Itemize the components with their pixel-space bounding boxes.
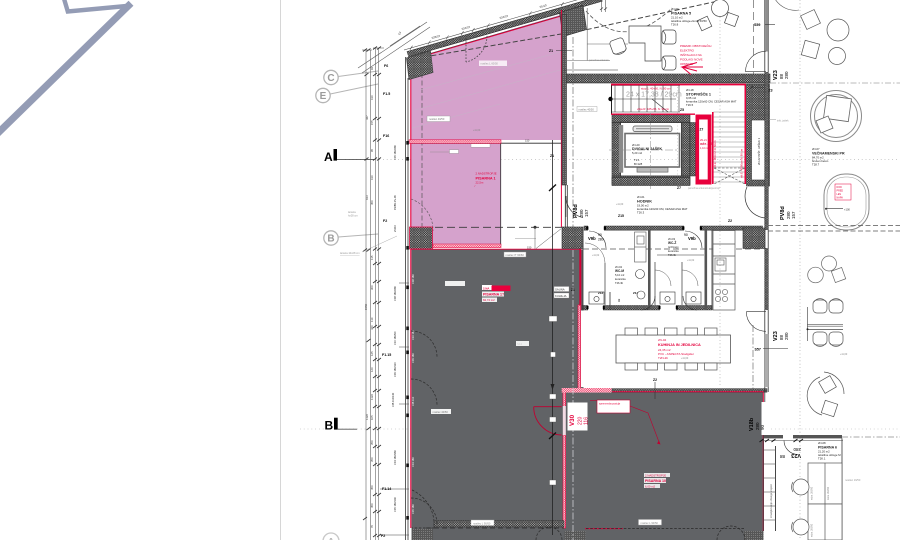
svg-text:INŠTALACIJ NA: INŠTALACIJ NA [680,52,702,57]
svg-text:2N-01: 2N-01 [637,195,645,199]
svg-text:lamela 10x28 cm: lamela 10x28 cm [340,251,360,255]
svg-text:V30: V30 [569,414,576,426]
svg-text:miza 160/80: miza 160/80 [827,486,830,500]
svg-text:70: 70 [370,524,374,528]
svg-text:nosilec L 90/50: nosilec L 90/50 [641,521,659,525]
svg-text:nosilec 16/50: nosilec 16/50 [845,478,861,482]
svg-text:T2N-2b: T2N-2b [658,356,668,360]
svg-text:keramika 120x60 CM, CESAR ASH: keramika 120x60 CM, CESAR ASH MAT [686,100,737,104]
svg-text:C04 180/360: C04 180/360 [393,450,397,465]
svg-text:2N-21: 2N-21 [700,139,707,142]
svg-text:hx28 cm: hx28 cm [348,214,358,218]
svg-text:nosilec L 90/50: nosilec L 90/50 [473,522,491,526]
svg-text:84,72 m2: 84,72 m2 [483,298,495,302]
svg-text:280: 280 [598,238,604,242]
svg-text:350: 350 [370,457,374,462]
svg-text:1550: 1550 [364,303,368,310]
svg-text:2.NADSTROPJE: 2.NADSTROPJE [476,172,497,176]
svg-text:+100: +100 [844,208,850,212]
svg-text:T26.3b: T26.3b [668,253,677,257]
svg-text:90: 90 [598,233,602,237]
svg-text:22,5m: 22,5m [476,180,484,184]
svg-text:90: 90 [760,424,765,430]
svg-text:KUHILJA: KUHILJA [555,294,567,298]
svg-text:miza 160/80: miza 160/80 [811,523,814,537]
svg-text:1126: 1126 [365,414,369,420]
svg-text:280: 280 [784,71,789,79]
svg-text:miza 160/80: miza 160/80 [811,486,814,500]
svg-text:keramika: keramika [668,249,679,253]
svg-text:F6: F6 [384,64,388,68]
svg-text:+11,60: +11,60 [473,129,481,132]
svg-text:5,20 m2: 5,20 m2 [632,151,643,155]
svg-text:+11,60: +11,60 [616,203,624,206]
svg-text:116: 116 [584,417,590,425]
svg-text:Z15: Z15 [618,214,624,218]
svg-text:2N-09: 2N-09 [671,7,679,11]
svg-text:157: 157 [791,211,796,219]
svg-text:T28.7: T28.7 [812,163,820,167]
svg-text:ELEKTRO: ELEKTRO [680,49,695,53]
svg-text:350: 350 [370,440,374,445]
svg-text:F2: F2 [381,534,385,538]
svg-text:2.NA: 2.NA [483,287,489,291]
svg-text:110: 110 [370,317,374,322]
svg-text:+11,62: +11,62 [687,259,695,262]
svg-text:115: 115 [370,255,374,260]
svg-text:2N/10: 2N/10 [393,225,397,232]
svg-text:SAUNA: SAUNA [555,288,565,292]
svg-text:A: A [324,150,333,164]
svg-text:C04 180: C04 180 [411,457,415,467]
svg-text:B: B [327,234,334,245]
svg-text:T26.8: T26.8 [671,23,679,27]
svg-text:150: 150 [525,139,530,143]
svg-text:Z7: Z7 [677,186,681,190]
svg-text:2N-18: 2N-18 [686,88,694,92]
svg-text:PODLAGI NOVE: PODLAGI NOVE [680,58,703,62]
svg-text:nosilec IT 90/60: nosilec IT 90/60 [506,253,525,257]
svg-text:C08 180: C08 180 [411,274,415,284]
svg-text:stop 1: 40+60, N: 90 cm: stop 1: 40+60, N: 90 cm [641,87,671,91]
svg-text:Z2: Z2 [728,219,732,223]
svg-text:keramika 120x60 CM, CESAR ASH: keramika 120x60 CM, CESAR ASH MAT [637,207,688,211]
svg-text:E: E [320,91,327,102]
svg-text:Z3: Z3 [769,89,773,93]
svg-text:95: 95 [370,148,374,152]
svg-text:PREMIK OBSTOJEČIH: PREMIK OBSTOJEČIH [680,43,711,48]
svg-text:+11,60: +11,60 [681,357,689,360]
svg-text:T26.3b: T26.3b [615,281,624,285]
svg-text:zmanjševanje obsega stopnic: zmanjševanje obsega stopnic [769,483,773,518]
svg-text:T26.3: T26.3 [637,211,645,215]
svg-text:viš E: 160cm / N: 60cm: viš E: 160cm / N: 60cm [713,140,717,168]
svg-text:Z12: Z12 [598,291,604,295]
svg-text:KUHINJA IN JEDILNICA: KUHINJA IN JEDILNICA [658,343,701,347]
svg-text:F1.14: F1.14 [382,487,391,491]
svg-text:2N-04: 2N-04 [658,338,667,342]
svg-text:T26.5: T26.5 [686,103,694,107]
svg-text:610: 610 [370,175,374,180]
svg-text:Z1: Z1 [571,288,575,292]
svg-text:C05 180: C05 180 [411,504,415,514]
svg-text:PISARNA 1?: PISARNA 1? [483,293,504,297]
svg-text:93: 93 [370,66,374,70]
svg-text:C10 180/90: C10 180/90 [393,331,397,345]
svg-text:S57: S57 [755,348,761,352]
svg-text:F9/B9 2N-06: F9/B9 2N-06 [393,195,397,210]
svg-text:nosilec 40/50: nosilec 40/50 [433,410,449,414]
svg-text:120: 120 [370,367,374,372]
svg-text:450: 450 [370,485,374,490]
svg-text:lamela: lamela [348,210,356,214]
svg-text:280: 280 [784,332,789,340]
svg-text:F2: F2 [383,219,387,223]
svg-text:300: 300 [370,285,374,290]
svg-text:NAPA: NAPA [837,197,844,200]
svg-text:inšt. jašek: inšt. jašek [777,119,789,123]
svg-text:2N-08: 2N-08 [818,441,826,445]
svg-text:B: B [325,419,334,433]
svg-text:nosilec 40/50: nosilec 40/50 [579,108,595,112]
svg-text:1126: 1126 [370,394,374,400]
svg-text:F16: F16 [383,134,389,138]
svg-text:PISARNA 10: PISARNA 10 [645,479,666,483]
svg-text:447: 447 [365,115,369,120]
svg-text:Z5: Z5 [680,108,684,112]
svg-text:tu/Omejp: tu/Omejp [668,245,679,249]
svg-text:V9b: V9b [688,236,696,241]
svg-text:5,10 m2: 5,10 m2 [615,273,625,277]
svg-text:C09 180/110: C09 180/110 [393,362,397,377]
svg-text:C/B 110/140: C/B 110/140 [391,392,395,407]
svg-text:V9b: V9b [588,236,596,241]
svg-text:višja R: 165+65, N: 90 cm: višja R: 165+65, N: 90 cm [637,107,670,111]
svg-text:C: C [327,73,334,84]
svg-text:105: 105 [370,415,374,420]
svg-text:keramika: keramika [615,277,626,281]
svg-text:Z1: Z1 [549,49,553,53]
svg-text:+11,62: +11,62 [592,254,600,257]
svg-text:C05 180/140: C05 180/140 [393,497,397,512]
svg-text:157: 157 [584,209,589,217]
svg-text:WC-Ž: WC-Ž [668,240,676,245]
svg-text:S59: S59 [754,23,760,27]
svg-text:24 x 17,38 / 29cm: 24 x 17,38 / 29cm [626,92,682,99]
svg-text:633: 633 [365,195,369,200]
svg-text:610: 610 [370,95,374,100]
svg-text:Z1: Z1 [550,154,554,158]
svg-text:450: 450 [370,503,374,508]
svg-text:C09 180: C09 180 [411,353,415,363]
svg-text:Z2: Z2 [653,378,657,382]
svg-text:2.NADSTROPJE: 2.NADSTROPJE [645,474,666,478]
svg-text:6,00 m2: 6,00 m2 [645,485,656,489]
svg-text:280: 280 [793,447,801,452]
svg-text:C08 180/280: C08 180/280 [393,286,397,301]
svg-text:1,10 m2: 1,10 m2 [700,147,710,150]
svg-text:155: 155 [370,120,374,125]
svg-text:125: 125 [370,351,374,356]
svg-text:92: 92 [617,298,621,302]
svg-text:C/B 110: C/B 110 [411,396,415,406]
svg-text:F1.5: F1.5 [383,92,390,96]
svg-text:nosilec 40/50: nosilec 40/50 [429,117,445,121]
svg-text:2N-07: 2N-07 [812,147,820,151]
svg-text:pomožna al konstrukcija strop: pomožna al konstrukcija strop [688,187,720,190]
svg-text:B=128: B=128 [634,162,643,166]
svg-text:+11,60: +11,60 [840,353,848,356]
svg-text:WC-M: WC-M [615,269,624,273]
svg-text:Z7: Z7 [700,128,704,132]
svg-text:T2K.1: T2K.1 [818,457,826,461]
svg-text:viš E: 40/60cm N: 90 cm: viš E: 40/60cm N: 90 cm [740,148,744,178]
svg-text:90: 90 [684,233,688,237]
svg-text:2N-22 INŠT. JAŠEK 1: 2N-22 INŠT. JAŠEK 1 [756,137,761,165]
svg-text:nosilec L 60/50: nosilec L 60/50 [481,62,499,66]
svg-text:S14: S14 [517,342,522,346]
svg-text:F1.15: F1.15 [382,353,391,357]
svg-text:sprememba pozicije: sprememba pozicije [599,403,621,406]
svg-text:88: 88 [779,454,785,459]
svg-text:450: 450 [370,200,374,205]
svg-text:420: 420 [370,325,374,330]
svg-text:C05 180/280: C05 180/280 [393,145,397,160]
